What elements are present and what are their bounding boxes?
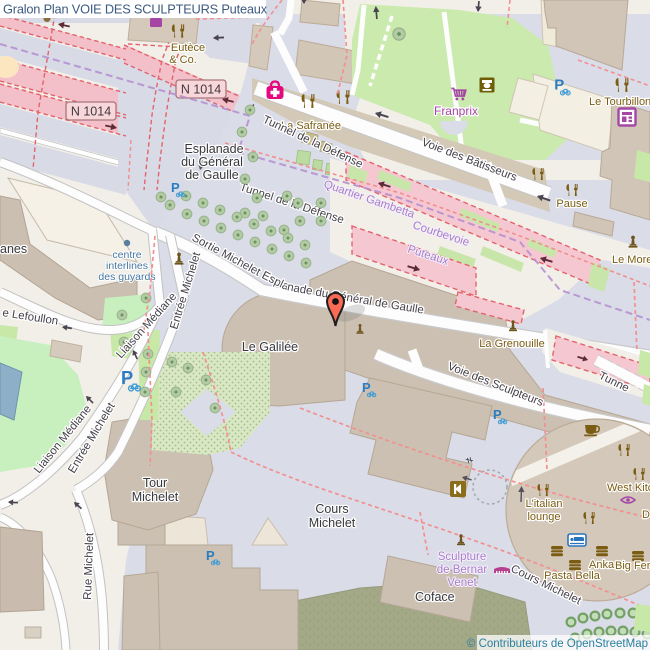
svg-text:Eutèce: Eutèce	[171, 42, 205, 54]
svg-text:Michelet: Michelet	[309, 516, 356, 530]
svg-text:de Bernar: de Bernar	[437, 564, 488, 576]
svg-text:Rue Michelet: Rue Michelet	[82, 532, 96, 600]
svg-text:West Kitch: West Kitch	[607, 482, 650, 494]
svg-text:© Contributeurs de OpenStreetM: © Contributeurs de OpenStreetMap	[467, 638, 648, 650]
svg-text:de Gaulle: de Gaulle	[185, 168, 239, 182]
svg-text:lounge: lounge	[527, 511, 560, 523]
svg-text:Esplanade: Esplanade	[184, 142, 243, 156]
svg-text:Franprix: Franprix	[434, 104, 478, 118]
svg-text:Big Fern: Big Fern	[615, 560, 650, 572]
svg-text:des guyards: des guyards	[98, 271, 155, 283]
svg-text:L'italian: L'italian	[526, 498, 563, 510]
svg-text:anes: anes	[0, 242, 27, 256]
svg-text:N 1014: N 1014	[181, 83, 221, 97]
svg-text:Le Galilée: Le Galilée	[242, 340, 298, 354]
svg-text:Cours: Cours	[315, 502, 348, 516]
svg-text:Venet: Venet	[447, 577, 477, 589]
svg-text:Da: Da	[642, 509, 650, 521]
svg-text:Gralon Plan VOIE DES SCULPTEUR: Gralon Plan VOIE DES SCULPTEURS Puteaux	[3, 2, 268, 17]
svg-text:Le Moret: Le Moret	[612, 254, 650, 266]
svg-text:du Général: du Général	[181, 155, 243, 169]
svg-text:Tour: Tour	[143, 476, 167, 490]
svg-text:N 1014: N 1014	[71, 105, 111, 119]
svg-text:Le Tourbillon: Le Tourbillon	[589, 96, 650, 108]
svg-text:La Grenouille: La Grenouille	[479, 338, 544, 350]
svg-text:& Co.: & Co.	[169, 54, 197, 66]
svg-text:Michelet: Michelet	[132, 490, 179, 504]
svg-text:Pasta Bella: Pasta Bella	[544, 570, 601, 582]
svg-text:Sculpture: Sculpture	[438, 551, 487, 563]
svg-text:Coface: Coface	[415, 590, 455, 604]
svg-text:Pause: Pause	[556, 198, 587, 210]
